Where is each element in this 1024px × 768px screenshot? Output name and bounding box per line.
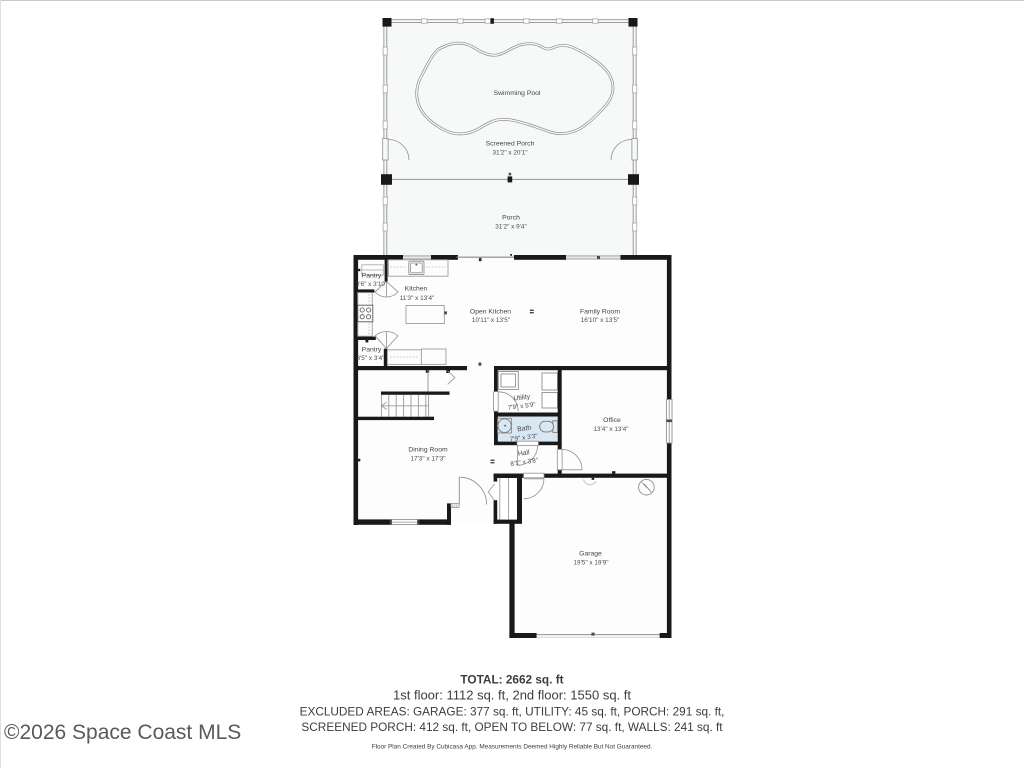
svg-text:11'3" x 13'4": 11'3" x 13'4" <box>400 295 435 302</box>
svg-text:3'6" x 3'10": 3'6" x 3'10" <box>356 281 388 288</box>
svg-text:Pantry: Pantry <box>362 273 382 280</box>
svg-text:31'2" x 9'4": 31'2" x 9'4" <box>495 224 527 231</box>
svg-text:TOTAL: 2662 sq. ft: TOTAL: 2662 sq. ft <box>460 673 563 687</box>
svg-text:1st floor: 1112 sq. ft, 2nd fl: 1st floor: 1112 sq. ft, 2nd floor: 1550 … <box>393 688 631 703</box>
svg-text:16'10" x 13'5": 16'10" x 13'5" <box>581 317 620 324</box>
svg-text:EXCLUDED AREAS: GARAGE: 377 sq: EXCLUDED AREAS: GARAGE: 377 sq. ft, UTIL… <box>300 705 725 719</box>
svg-text:Family Room: Family Room <box>580 309 620 316</box>
svg-text:Screened Porch: Screened Porch <box>486 141 535 148</box>
svg-text:Floor Plan Created By Cubicasa: Floor Plan Created By Cubicasa App. Meas… <box>372 744 653 751</box>
svg-text:Swimming Pool: Swimming Pool <box>494 90 541 97</box>
svg-text:Dining Room: Dining Room <box>408 447 448 454</box>
svg-text:Office: Office <box>603 417 621 424</box>
svg-text:10'11" x 13'5": 10'11" x 13'5" <box>472 317 510 324</box>
svg-text:Open Kitchen: Open Kitchen <box>470 309 511 316</box>
svg-text:3'5" x 3'4": 3'5" x 3'4" <box>357 355 385 362</box>
svg-text:13'4" x 13'4": 13'4" x 13'4" <box>593 426 628 433</box>
svg-text:Pantry: Pantry <box>362 347 382 354</box>
svg-text:Garage: Garage <box>579 551 602 558</box>
svg-text:19'5" x 19'9": 19'5" x 19'9" <box>573 560 608 567</box>
svg-text:Porch: Porch <box>502 215 520 222</box>
svg-text:©2026 Space Coast MLS: ©2026 Space Coast MLS <box>4 721 241 744</box>
svg-text:Kitchen: Kitchen <box>405 286 428 293</box>
svg-text:SCREENED PORCH: 412 sq. ft, OP: SCREENED PORCH: 412 sq. ft, OPEN TO BELO… <box>301 720 723 734</box>
svg-text:31'2" x 20'1": 31'2" x 20'1" <box>492 150 527 157</box>
svg-text:17'3" x 17'3": 17'3" x 17'3" <box>410 456 445 463</box>
